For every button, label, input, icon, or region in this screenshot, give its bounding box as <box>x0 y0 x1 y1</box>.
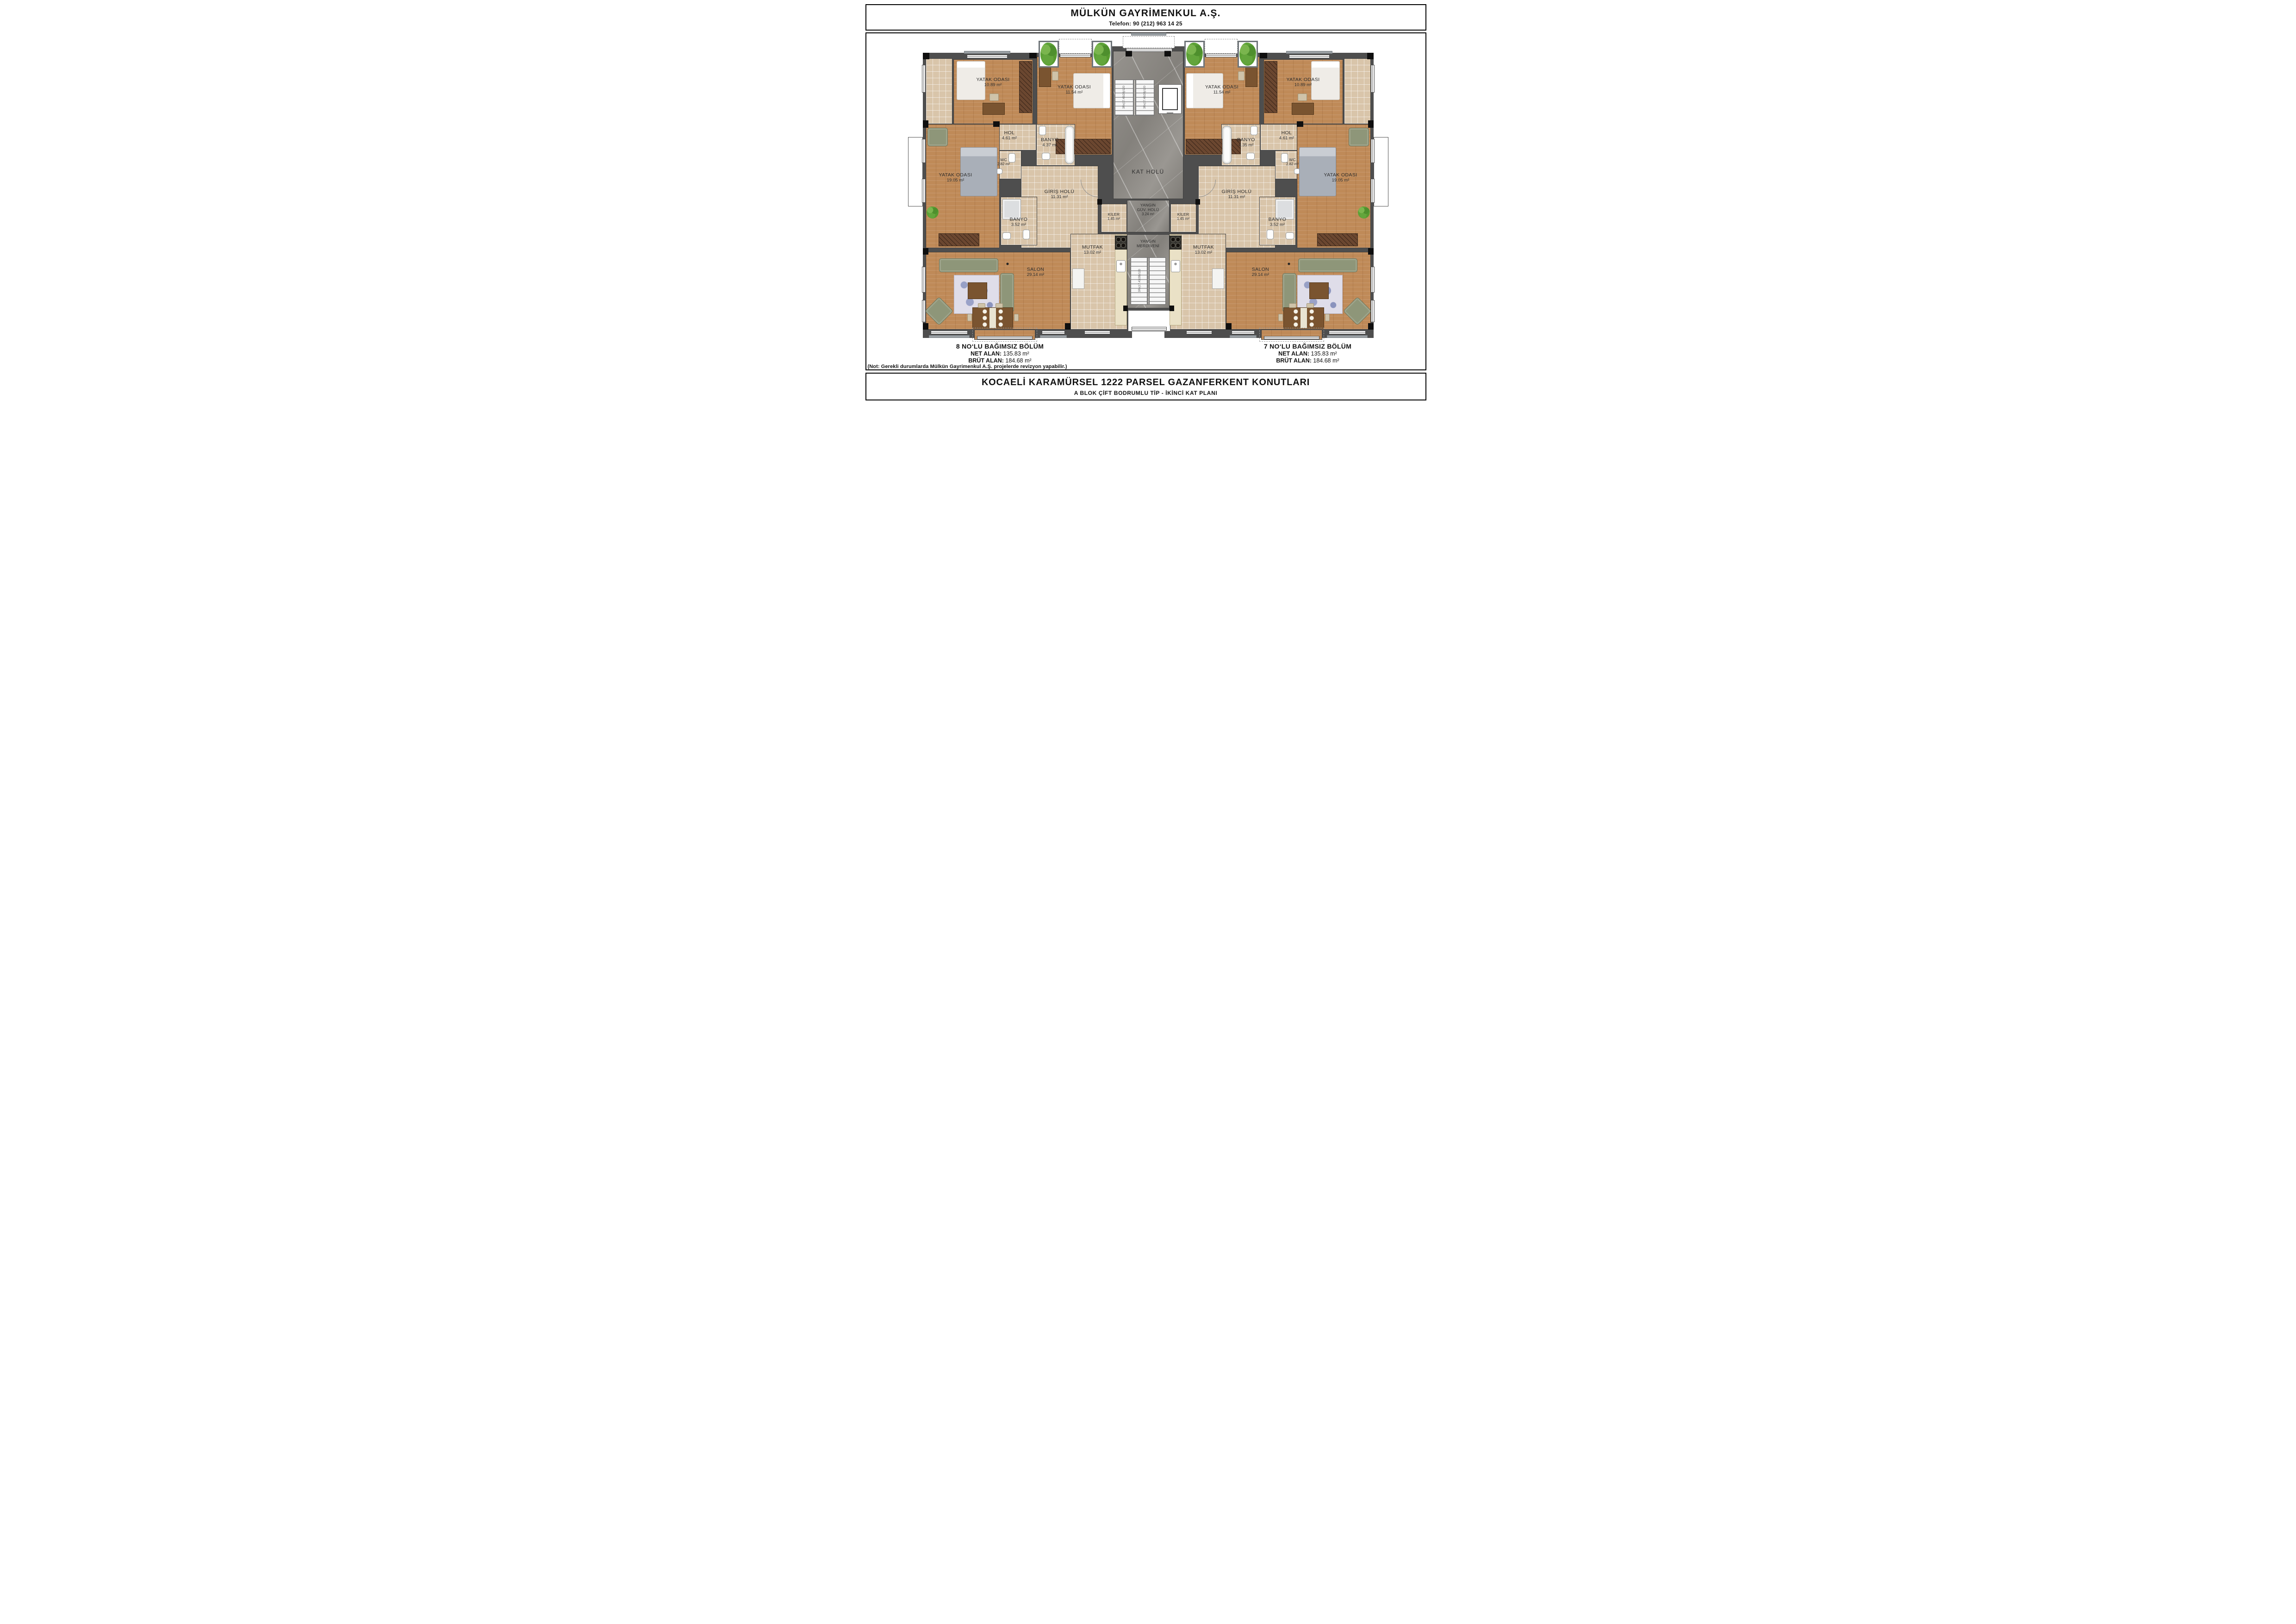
bathtub <box>1065 126 1074 164</box>
balcony-outline <box>1205 39 1238 54</box>
double-bed <box>960 147 997 196</box>
chair <box>967 314 972 321</box>
room-name: BANYO <box>1259 217 1296 222</box>
room-area: 11.54 m² <box>1184 90 1260 95</box>
armchair <box>927 128 948 146</box>
room-label: YATAK ODASI 11.54 m² <box>1037 84 1112 95</box>
window <box>1232 331 1255 334</box>
room-area: 1.45 m² <box>1170 217 1196 221</box>
desk <box>1039 65 1051 87</box>
floor-plan-sheet: MÜLKÜN GAYRİMENKUL A.Ş. Telefon: 90 (212… <box>861 0 1435 406</box>
desk <box>1245 65 1257 87</box>
window-sill <box>964 51 1010 54</box>
chair <box>978 303 985 308</box>
stair-annotation: 3Rx(17.43/28)/120 <box>1123 81 1126 113</box>
wall-column <box>923 323 928 330</box>
plan-subtitle: A BLOK ÇİFT BODRUMLU TİP - İKİNCİ KAT PL… <box>1074 390 1218 396</box>
chair <box>1278 314 1283 321</box>
wall-column <box>1126 51 1132 56</box>
chair <box>1298 94 1307 101</box>
room-area: 10.89 m² <box>1263 82 1343 87</box>
window-sill <box>1327 335 1368 338</box>
room-name: MUTFAK <box>1070 244 1115 250</box>
room-area: 2.82 m² <box>994 162 1014 166</box>
wall-column <box>1226 323 1232 330</box>
elevator-door <box>1167 112 1173 114</box>
fire-stair-flight-right <box>1149 257 1166 305</box>
wall-column <box>993 121 1000 127</box>
balcony-outline <box>1059 39 1092 54</box>
core-entry-recess <box>1123 36 1175 48</box>
wall-column <box>923 120 928 128</box>
company-title: MÜLKÜN GAYRİMENKUL A.Ş. <box>1070 8 1220 19</box>
window <box>1371 267 1375 293</box>
room-area: 2.82 m² <box>1282 162 1303 166</box>
balcony-window <box>1371 65 1375 93</box>
core-entry-sill <box>1131 33 1166 36</box>
kiler-label-unit7: KİLER 1.45 m² <box>1170 212 1196 221</box>
wall-column <box>923 53 929 59</box>
window <box>967 55 1008 58</box>
plant <box>927 206 939 219</box>
room-name: MERDİVENİ <box>1127 244 1170 248</box>
chair <box>1052 71 1058 81</box>
window <box>931 331 968 334</box>
room-name: GİRİŞ HOLÜ <box>1021 189 1098 194</box>
chair <box>989 94 999 101</box>
sink <box>1246 153 1255 160</box>
window <box>1329 331 1366 334</box>
window <box>1371 179 1375 203</box>
plant <box>1094 43 1110 66</box>
net-alan-label: NET ALAN: <box>1278 350 1309 357</box>
room-label: HOL 4.61 m² <box>983 130 1036 141</box>
room-name: BANYO <box>1001 217 1037 222</box>
room-label: BANYO 3.52 m² <box>1001 217 1037 228</box>
room-area: 1.45 m² <box>1101 217 1127 221</box>
toilet <box>1023 230 1030 239</box>
room-area: 3.24 m² <box>1127 212 1170 216</box>
room-name: YANGIN <box>1127 203 1170 207</box>
window-sill <box>1040 335 1067 338</box>
room-area: 13.02 m² <box>1182 250 1226 255</box>
window <box>1206 54 1237 57</box>
room-name: YATAK ODASI <box>953 77 1033 82</box>
unit8-info: 8 NO‘LU BAĞIMSIZ BÖLÜM NET ALAN: 135.83 … <box>949 343 1051 364</box>
room-name: MUTFAK <box>1182 244 1226 250</box>
room-name: SALON <box>1231 267 1291 272</box>
core-bottom-window <box>1132 327 1167 331</box>
chair <box>1014 314 1019 321</box>
balcony-left <box>908 137 923 206</box>
room-label: MUTFAK 13.02 m² <box>1070 244 1115 256</box>
wall-column <box>1065 323 1070 330</box>
wall-column <box>1170 306 1174 311</box>
wall-column <box>1297 121 1303 127</box>
room-name: BANYO <box>1232 137 1261 143</box>
chair <box>996 303 1003 308</box>
room-area: 4.35 m² <box>1232 143 1261 148</box>
revision-note: (Not: Gerekli durumlarda Mülkün Gayrimen… <box>868 364 1067 369</box>
wall-column <box>1368 323 1374 330</box>
wall-column <box>1260 53 1267 58</box>
net-alan-label: NET ALAN: <box>971 350 1002 357</box>
toilet <box>1039 126 1046 135</box>
stair-annotation: 3Rx(17.43/28)/120 <box>1144 81 1146 113</box>
desk <box>1292 103 1314 115</box>
coffee-table <box>1309 282 1329 299</box>
room-label: YATAK ODASI 10.89 m² <box>953 77 1033 88</box>
room-area: 11.54 m² <box>1037 90 1112 95</box>
wardrobe <box>1317 233 1358 246</box>
brut-alan-label: BRÜT ALAN: <box>968 357 1004 364</box>
plant <box>1040 43 1057 66</box>
room-name: YATAK ODASI <box>1037 84 1112 90</box>
room-name: GİRİŞ HOLÜ <box>1198 189 1276 194</box>
elevator-car <box>1162 88 1178 110</box>
room-area: 3.52 m² <box>1001 222 1037 227</box>
room-name: KAT HOLÜ <box>1113 169 1183 175</box>
wall-column <box>1367 53 1374 59</box>
company-phone: Telefon: 90 (212) 963 14 25 <box>1109 20 1182 27</box>
room-area: 29.14 m² <box>1231 272 1291 277</box>
room-name: GÜV. HOLÜ <box>1127 207 1170 212</box>
bay-window <box>977 336 1033 339</box>
plant <box>1186 43 1203 66</box>
fire-stair-divider <box>1147 257 1149 305</box>
net-alan-value: 135.83 m² <box>1003 350 1029 357</box>
plant <box>1239 43 1256 66</box>
brut-alan-value: 184.68 m² <box>1005 357 1031 364</box>
wall-column <box>1029 53 1037 58</box>
main-stair-flight-right: 3Rx(17.43/28)/120 <box>1136 80 1154 116</box>
room-label: GİRİŞ HOLÜ 11.31 m² <box>1021 189 1098 200</box>
wall-column <box>1368 248 1374 255</box>
balcony-door <box>1186 331 1212 334</box>
room-label: BANYO 4.37 m² <box>1035 137 1065 148</box>
sofa <box>939 258 998 272</box>
room-area: 4.37 m² <box>1035 143 1065 148</box>
armchair <box>1349 128 1369 146</box>
room-label: BANYO 3.52 m² <box>1259 217 1296 228</box>
room-area: 29.14 m² <box>1006 272 1066 277</box>
header-box: MÜLKÜN GAYRİMENKUL A.Ş. Telefon: 90 (212… <box>865 4 1426 31</box>
room-label: YATAK ODASI 19.05 m² <box>1311 172 1371 183</box>
room-label: GİRİŞ HOLÜ 11.31 m² <box>1198 189 1276 200</box>
room-name: WC <box>994 157 1014 162</box>
window-sill <box>929 335 970 338</box>
room-name: YANGIN <box>1127 239 1170 244</box>
coffee-table <box>968 282 987 299</box>
wardrobe <box>939 233 979 246</box>
sink <box>1286 232 1294 239</box>
room-name: WC <box>1282 157 1303 162</box>
room-label: WC 2.82 m² <box>994 157 1014 166</box>
double-bed <box>1299 147 1336 196</box>
main-stair-flight-left: 3Rx(17.43/28)/120 <box>1115 80 1133 116</box>
yangin-guv-holu-label: YANGIN GÜV. HOLÜ 3.24 m² <box>1127 203 1170 216</box>
window <box>1371 300 1375 322</box>
project-title: KOCAELİ KARAMÜRSEL 1222 PARSEL GAZANFERK… <box>982 377 1310 388</box>
kat-holu-floor <box>1113 51 1183 199</box>
wall-column <box>923 248 928 255</box>
room-label: HOL 4.61 m² <box>1260 130 1313 141</box>
balcony-window <box>922 65 926 93</box>
room-name: YATAK ODASI <box>926 172 986 178</box>
sofa <box>1298 258 1357 272</box>
wall-column <box>1164 51 1171 56</box>
stove <box>1170 236 1182 250</box>
room-name: HOL <box>983 130 1036 136</box>
bay-window <box>1264 336 1319 339</box>
yangin-merdiveni-label: YANGIN MERDİVENİ <box>1127 239 1170 248</box>
wall-column <box>1195 199 1200 205</box>
stove <box>1115 236 1127 250</box>
kat-holu-label: KAT HOLÜ <box>1113 169 1183 175</box>
room-area: 11.31 m² <box>1021 194 1098 200</box>
chair <box>1289 303 1296 308</box>
chair <box>1325 314 1330 321</box>
window <box>1289 55 1330 58</box>
room-label: YATAK ODASI 11.54 m² <box>1184 84 1260 95</box>
sink <box>1002 232 1011 239</box>
room-area: 11.31 m² <box>1198 194 1276 200</box>
toilet <box>1267 230 1274 239</box>
main-stair-divider <box>1133 80 1136 116</box>
balcony-right <box>1374 137 1388 206</box>
kiler-label-unit8: KİLER 1.45 m² <box>1101 212 1127 221</box>
window-sill <box>1286 51 1332 54</box>
sink <box>1042 153 1050 160</box>
balcony-top-left <box>926 58 952 124</box>
brut-alan-value: 184.68 m² <box>1313 357 1339 364</box>
room-name: YATAK ODASI <box>1184 84 1260 90</box>
wall-column <box>1368 120 1374 128</box>
room-name: KİLER <box>1170 212 1196 217</box>
balcony-door <box>1084 331 1110 334</box>
footer-box: KOCAELİ KARAMÜRSEL 1222 PARSEL GAZANFERK… <box>865 373 1426 400</box>
room-label: YATAK ODASI 10.89 m² <box>1263 77 1343 88</box>
window <box>922 179 926 203</box>
room-label: WC 2.82 m² <box>1282 157 1303 166</box>
kitchen-sink <box>1116 260 1126 272</box>
room-label: YATAK ODASI 19.05 m² <box>926 172 986 183</box>
window <box>922 300 926 322</box>
unit7-info: 7 NO‘LU BAĞIMSIZ BÖLÜM NET ALAN: 135.83 … <box>1257 343 1359 364</box>
room-label: BANYO 4.35 m² <box>1232 137 1261 148</box>
unit-title: 7 NO‘LU BAĞIMSIZ BÖLÜM <box>1257 343 1359 350</box>
brut-alan-label: BRÜT ALAN: <box>1276 357 1312 364</box>
chair <box>1307 303 1314 308</box>
dining-table <box>1283 307 1324 329</box>
balcony-top-right <box>1344 58 1371 124</box>
window <box>922 139 926 163</box>
stair-annotation: 3Rx(17.43/28)/120 <box>1139 264 1141 297</box>
plant <box>1358 206 1370 219</box>
net-alan-value: 135.83 m² <box>1311 350 1337 357</box>
room-name: HOL <box>1260 130 1313 136</box>
window <box>1042 331 1065 334</box>
window <box>1060 54 1091 57</box>
wall-column <box>1097 199 1102 205</box>
room-area: 13.02 m² <box>1070 250 1115 255</box>
room-area: 19.05 m² <box>1311 178 1371 183</box>
bathtub <box>1222 126 1232 164</box>
room-area: 4.61 m² <box>983 136 1036 141</box>
window <box>922 267 926 293</box>
room-name: BANYO <box>1035 137 1065 143</box>
appliance <box>1212 269 1224 289</box>
chair <box>1238 71 1244 81</box>
room-name: YATAK ODASI <box>1311 172 1371 178</box>
desk <box>983 103 1005 115</box>
room-label: MUTFAK 13.02 m² <box>1182 244 1226 256</box>
room-area: 3.52 m² <box>1259 222 1296 227</box>
appliance <box>1072 269 1084 289</box>
fire-stair-flight-left: 3Rx(17.43/28)/120 <box>1131 257 1147 305</box>
room-area: 19.05 m² <box>926 178 986 183</box>
toilet <box>1251 126 1257 135</box>
room-name: SALON <box>1006 267 1066 272</box>
unit-title: 8 NO‘LU BAĞIMSIZ BÖLÜM <box>949 343 1051 350</box>
window <box>1371 139 1375 163</box>
dining-table <box>972 307 1013 329</box>
window-sill <box>1230 335 1257 338</box>
room-area: 10.89 m² <box>953 82 1033 87</box>
room-label: SALON 29.14 m² <box>1006 267 1066 278</box>
room-name: KİLER <box>1101 212 1127 217</box>
kitchen-sink <box>1171 260 1180 272</box>
room-label: SALON 29.14 m² <box>1231 267 1291 278</box>
room-area: 4.61 m² <box>1260 136 1313 141</box>
wall-column <box>1123 306 1128 311</box>
room-name: YATAK ODASI <box>1263 77 1343 82</box>
